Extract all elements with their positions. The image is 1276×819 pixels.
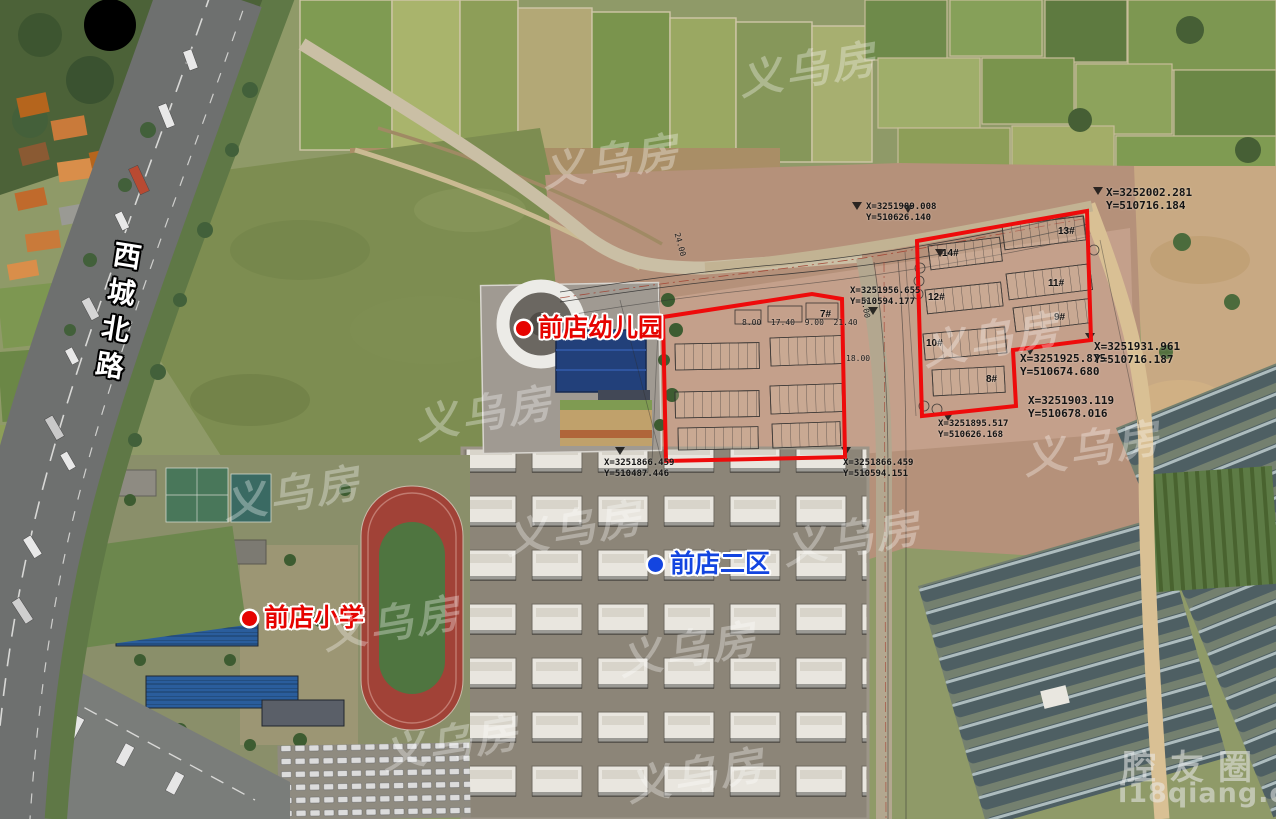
parking-lot — [277, 742, 470, 819]
kindergarten-compound — [481, 282, 683, 453]
satellite-imagery — [0, 0, 1276, 819]
residential-grid — [462, 448, 868, 819]
satellite-map[interactable]: 西城北路 前店幼儿园 前店二区 前店小学 X=3251989.008Y=5106… — [0, 0, 1276, 819]
